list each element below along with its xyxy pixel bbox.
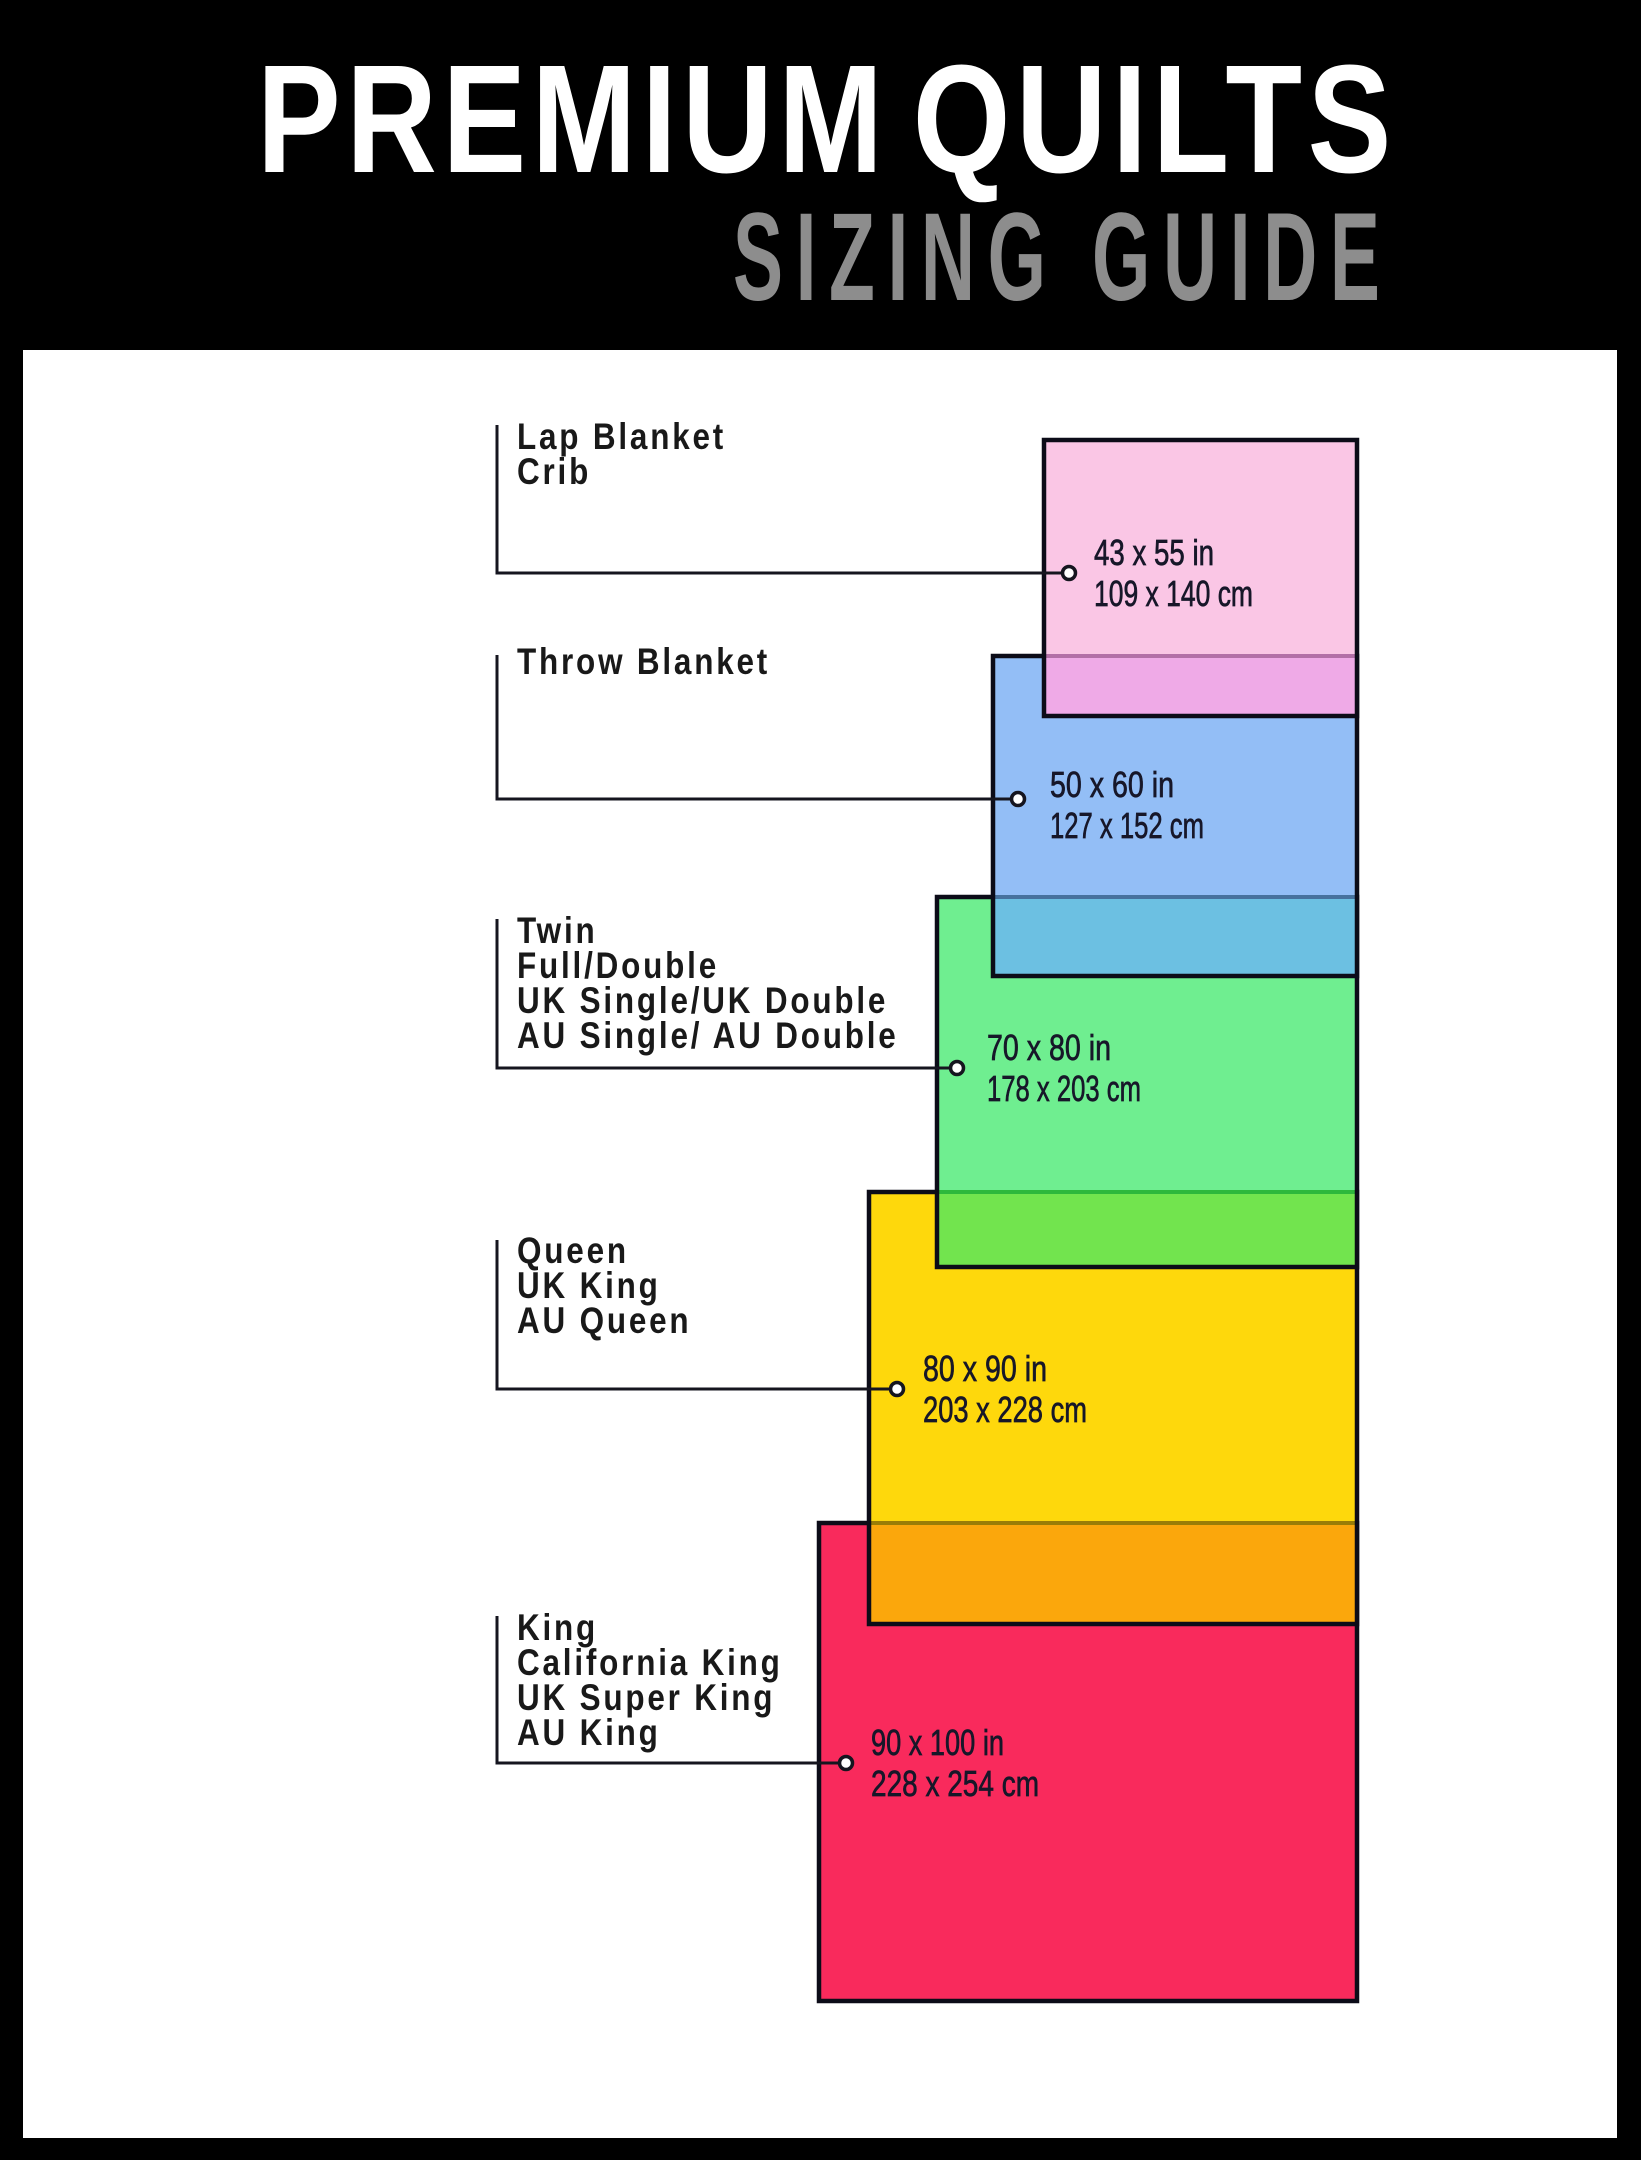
svg-text:43 x 55 in: 43 x 55 in xyxy=(1094,532,1214,573)
svg-text:AU Single/ AU Double: AU Single/ AU Double xyxy=(517,1016,899,1057)
svg-text:PREMIUM QUILTS: PREMIUM QUILTS xyxy=(257,33,1397,205)
svg-text:203 x 228 cm: 203 x 228 cm xyxy=(923,1389,1087,1430)
svg-text:80 x 90 in: 80 x 90 in xyxy=(923,1348,1047,1389)
svg-text:Crib: Crib xyxy=(517,452,591,493)
svg-text:AU Queen: AU Queen xyxy=(517,1301,691,1342)
svg-text:70 x 80 in: 70 x 80 in xyxy=(987,1027,1111,1068)
svg-text:90 x 100 in: 90 x 100 in xyxy=(871,1722,1004,1763)
svg-text:50 x 60 in: 50 x 60 in xyxy=(1050,764,1174,805)
svg-text:SIZING GUIDE: SIZING GUIDE xyxy=(733,187,1393,326)
svg-text:228 x 254 cm: 228 x 254 cm xyxy=(871,1763,1039,1804)
svg-text:127 x 152 cm: 127 x 152 cm xyxy=(1050,805,1204,846)
svg-text:AU King: AU King xyxy=(517,1713,661,1754)
svg-text:109 x 140 cm: 109 x 140 cm xyxy=(1094,573,1253,614)
svg-text:Throw Blanket: Throw Blanket xyxy=(517,642,770,683)
svg-text:178 x 203 cm: 178 x 203 cm xyxy=(987,1068,1141,1109)
